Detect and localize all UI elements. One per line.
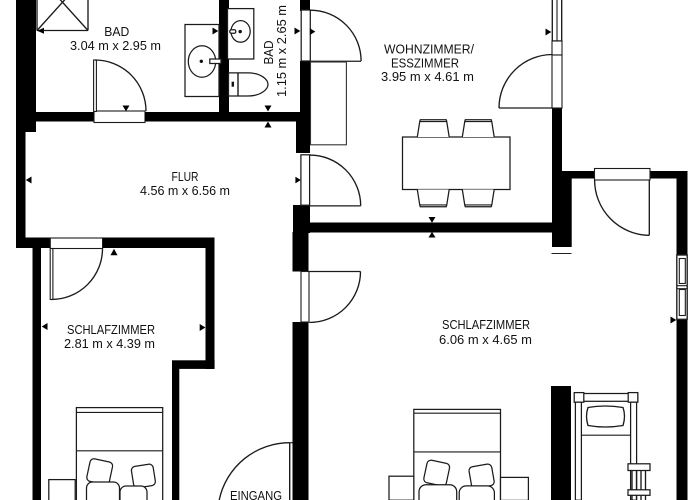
- svg-text:EINGANG: EINGANG: [230, 488, 282, 500]
- svg-text:6.06 m x 4.65 m: 6.06 m x 4.65 m: [439, 332, 532, 347]
- svg-text:3.95 m x 4.61 m: 3.95 m x 4.61 m: [381, 69, 474, 84]
- svg-text:WOHNZIMMER/: WOHNZIMMER/: [384, 42, 474, 57]
- svg-text:SCHLAFZIMMER: SCHLAFZIMMER: [442, 317, 530, 332]
- svg-text:1.15 m x 2.65 m: 1.15 m x 2.65 m: [274, 5, 289, 97]
- svg-text:2.81 m x 4.39 m: 2.81 m x 4.39 m: [64, 336, 155, 351]
- svg-text:FLUR: FLUR: [172, 169, 199, 184]
- svg-text:BAD: BAD: [104, 24, 129, 39]
- svg-text:3.04 m x 2.95 m: 3.04 m x 2.95 m: [70, 38, 161, 53]
- svg-text:SCHLAFZIMMER: SCHLAFZIMMER: [67, 322, 155, 337]
- svg-text:4.56 m x 6.56 m: 4.56 m x 6.56 m: [140, 183, 230, 198]
